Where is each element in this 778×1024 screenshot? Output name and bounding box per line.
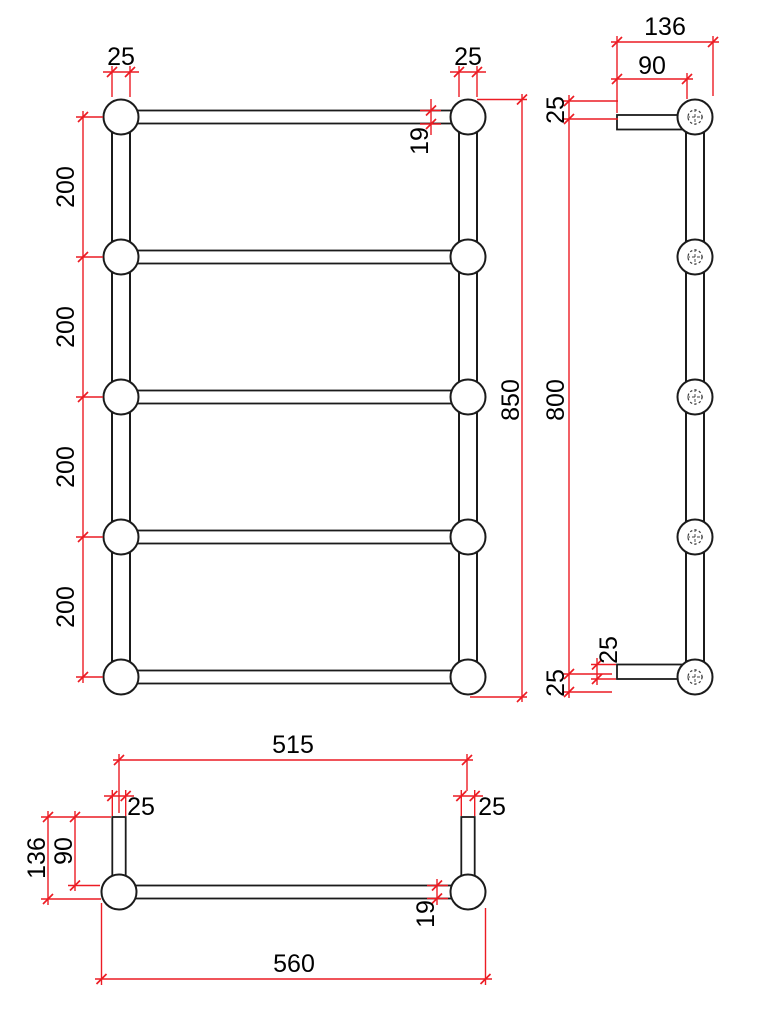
- plan-view: 515 25 25 90: [23, 731, 506, 985]
- dim-label-plan-overall-width: 560: [273, 950, 315, 978]
- ball-joint: [104, 380, 139, 415]
- dim-label-plan-depth: 136: [23, 837, 51, 879]
- plan-bracket-left: [112, 817, 125, 877]
- ball-joint: [451, 380, 486, 415]
- dim-label-side-depth: 136: [644, 13, 686, 41]
- side-ball-joint: [678, 240, 713, 275]
- dim-label-tube-width-right: 25: [454, 43, 482, 71]
- side-ball-joint: [678, 660, 713, 695]
- dim-front-tube-width-right: 25: [450, 43, 486, 97]
- rail: [121, 391, 468, 404]
- dim-label-rung-spacing-3: 200: [52, 446, 80, 488]
- dim-label-overall-height: 850: [497, 379, 525, 421]
- dim-label-rung-spacing-4: 200: [52, 586, 80, 628]
- dim-label-side-fixing-centres: 800: [542, 379, 570, 421]
- dim-front-tube-width-left: 25: [103, 43, 139, 97]
- plan-bracket-right: [461, 817, 474, 877]
- ball-joint: [451, 660, 486, 695]
- dim-label-side-bottom-offset: 25: [542, 669, 570, 697]
- plan-ball-joint: [451, 875, 486, 910]
- dim-plan-fixing-centres: 515: [113, 731, 473, 813]
- ball-joint: [451, 520, 486, 555]
- ball-joint: [451, 100, 486, 135]
- rail: [121, 671, 468, 684]
- front-view: 200 200 200 200 25 25 19: [52, 43, 527, 702]
- dim-label-tube-width-left: 25: [107, 43, 135, 71]
- ball-joint: [104, 240, 139, 275]
- front-view-parts: [104, 100, 486, 695]
- dim-label-rung-spacing-1: 200: [52, 166, 80, 208]
- dim-label-side-bracket-height: 25: [595, 636, 623, 664]
- plan-rail: [119, 886, 468, 899]
- plan-view-parts: [102, 817, 486, 910]
- dim-plan-wall-to-rail: 90: [50, 811, 100, 891]
- side-view: 136 90 25 800 25 25: [542, 13, 719, 698]
- dim-label-plan-bracket-left: 25: [127, 793, 155, 821]
- drawing-page: 200 200 200 200 25 25 19: [0, 0, 778, 1024]
- side-ball-joint: [678, 520, 713, 555]
- dim-side-fixing-stack: 25 800 25: [542, 95, 618, 698]
- dim-label-plan-fixing-centres: 515: [272, 731, 314, 759]
- dim-front-rail-diameter: 19: [406, 99, 441, 155]
- dim-label-side-wall-to-tube: 90: [638, 52, 666, 80]
- dim-side-wall-to-tube: 90: [611, 52, 693, 99]
- dim-label-plan-rail-diameter: 19: [412, 900, 440, 928]
- towel-rail-technical-drawing: 200 200 200 200 25 25 19: [0, 0, 778, 1024]
- ball-joint: [104, 100, 139, 135]
- dim-label-rung-spacing-2: 200: [52, 306, 80, 348]
- ball-joint: [451, 240, 486, 275]
- plan-ball-joint: [102, 875, 137, 910]
- side-ball-joint: [678, 380, 713, 415]
- dim-label-side-top-offset: 25: [542, 96, 570, 124]
- side-ball-joint: [678, 100, 713, 135]
- side-view-parts: [617, 100, 713, 695]
- dim-front-rung-spacings: 200 200 200 200: [52, 111, 103, 683]
- dim-label-plan-wall-to-rail: 90: [50, 837, 78, 865]
- rail: [121, 531, 468, 544]
- dim-label-plan-bracket-right: 25: [478, 793, 506, 821]
- rail: [121, 251, 468, 264]
- ball-joint: [104, 520, 139, 555]
- rail: [121, 111, 468, 124]
- ball-joint: [104, 660, 139, 695]
- dim-label-rail-diameter: 19: [406, 127, 434, 155]
